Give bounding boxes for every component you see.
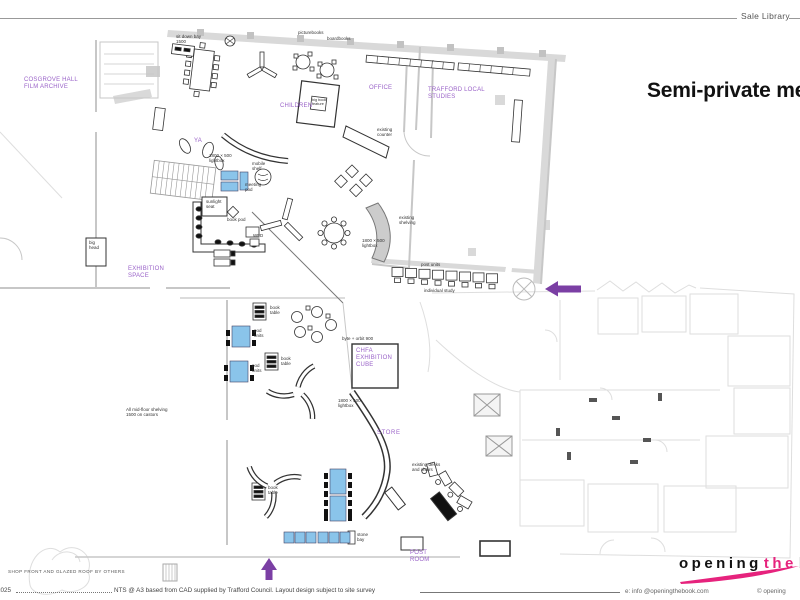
annotation-label: 1800 × 500 lightbox: [362, 239, 385, 249]
annotation-label: WFD: [253, 234, 263, 239]
doc-label: Sale Library: [741, 12, 790, 22]
annotation-label: sunlight seat: [206, 200, 222, 210]
room-label-office: OFFICE: [369, 85, 392, 92]
room-label-store: STORE: [377, 430, 401, 437]
room-label-ya: YA: [194, 138, 202, 145]
annotation-label: big book feature: [312, 98, 326, 106]
header-rule-left: [0, 18, 737, 19]
footer-dotted-rule: [16, 592, 112, 593]
annotation-label: sit down bay 1500: [176, 35, 201, 45]
annotation-label: existing counter: [377, 128, 392, 138]
header-rule-right: [789, 18, 800, 19]
footer-year: 2025: [0, 587, 11, 594]
radiator-marks: [556, 393, 662, 464]
annotation-label: existing shelving: [399, 216, 416, 226]
annotation-label: 1800 × 500 lightbox: [338, 399, 361, 409]
existing-shelving-shape: [366, 203, 390, 262]
room-label-post-room: POST ROOM: [410, 550, 429, 564]
annotation-label: book table: [268, 486, 278, 496]
annotation-label: pod units: [254, 329, 264, 339]
room-label-exhibition: EXHIBITION SPACE: [128, 266, 164, 280]
annotation-label: picturebooks: [298, 31, 324, 36]
footer-copyright: © opening: [757, 588, 786, 595]
footer-rule: [420, 592, 620, 593]
annotation-label: mobile shelf: [252, 162, 265, 172]
annotation-label: big head: [89, 241, 99, 251]
page-title: Semi-private meetings: [647, 79, 800, 103]
furniture: [86, 36, 530, 556]
room-label-cosgrove: COSGROVE HALL FILM ARCHIVE: [24, 77, 78, 91]
logo-word-opening: opening: [679, 555, 762, 572]
annotation-label: byte + orbit 900: [342, 337, 373, 342]
annotation-label: All mid-floor shelving 1500 on castors: [126, 408, 168, 418]
logo-word-the: the: [764, 555, 797, 572]
footer-scale-note: NTS @ A3 based from CAD supplied by Traf…: [114, 587, 375, 594]
room-label-children: CHILDREN: [280, 103, 312, 110]
annotation-label: existing desks and chairs: [412, 463, 440, 473]
opening-the-book-logo: openingtheb: [679, 555, 800, 572]
room-label-chfa-cube: CHFA EXHIBITION CUBE: [356, 348, 392, 369]
entrance-arrow-up-icon: [261, 558, 277, 580]
annotation-label: meeting pod: [245, 183, 261, 193]
annotation-label: book pod: [227, 218, 246, 223]
annotation-label: 1800 × 500 lightbox: [209, 154, 232, 164]
entrance-arrow-left-icon: [545, 281, 581, 297]
floor-plan-page: Sale Library Semi-private meetings COSGR…: [0, 0, 800, 600]
annotation-label: stone bay: [357, 533, 368, 543]
lift-shafts: [474, 394, 512, 456]
room-label-trafford: TRAFFORD LOCAL STUDIES: [428, 87, 485, 101]
annotation-label: boardbooks: [327, 37, 351, 42]
annotation-label: pod units: [252, 364, 262, 374]
annotation-label: individual study: [424, 289, 455, 294]
annotation-label: post units: [421, 263, 440, 268]
footer-email: e: info @openingthebook.com: [625, 588, 709, 595]
annotation-label: book table: [270, 306, 280, 316]
annotation-label: book table: [281, 357, 291, 367]
shop-front-note: SHOP FRONT AND GLAZED ROOF BY OTHERS: [8, 569, 125, 574]
